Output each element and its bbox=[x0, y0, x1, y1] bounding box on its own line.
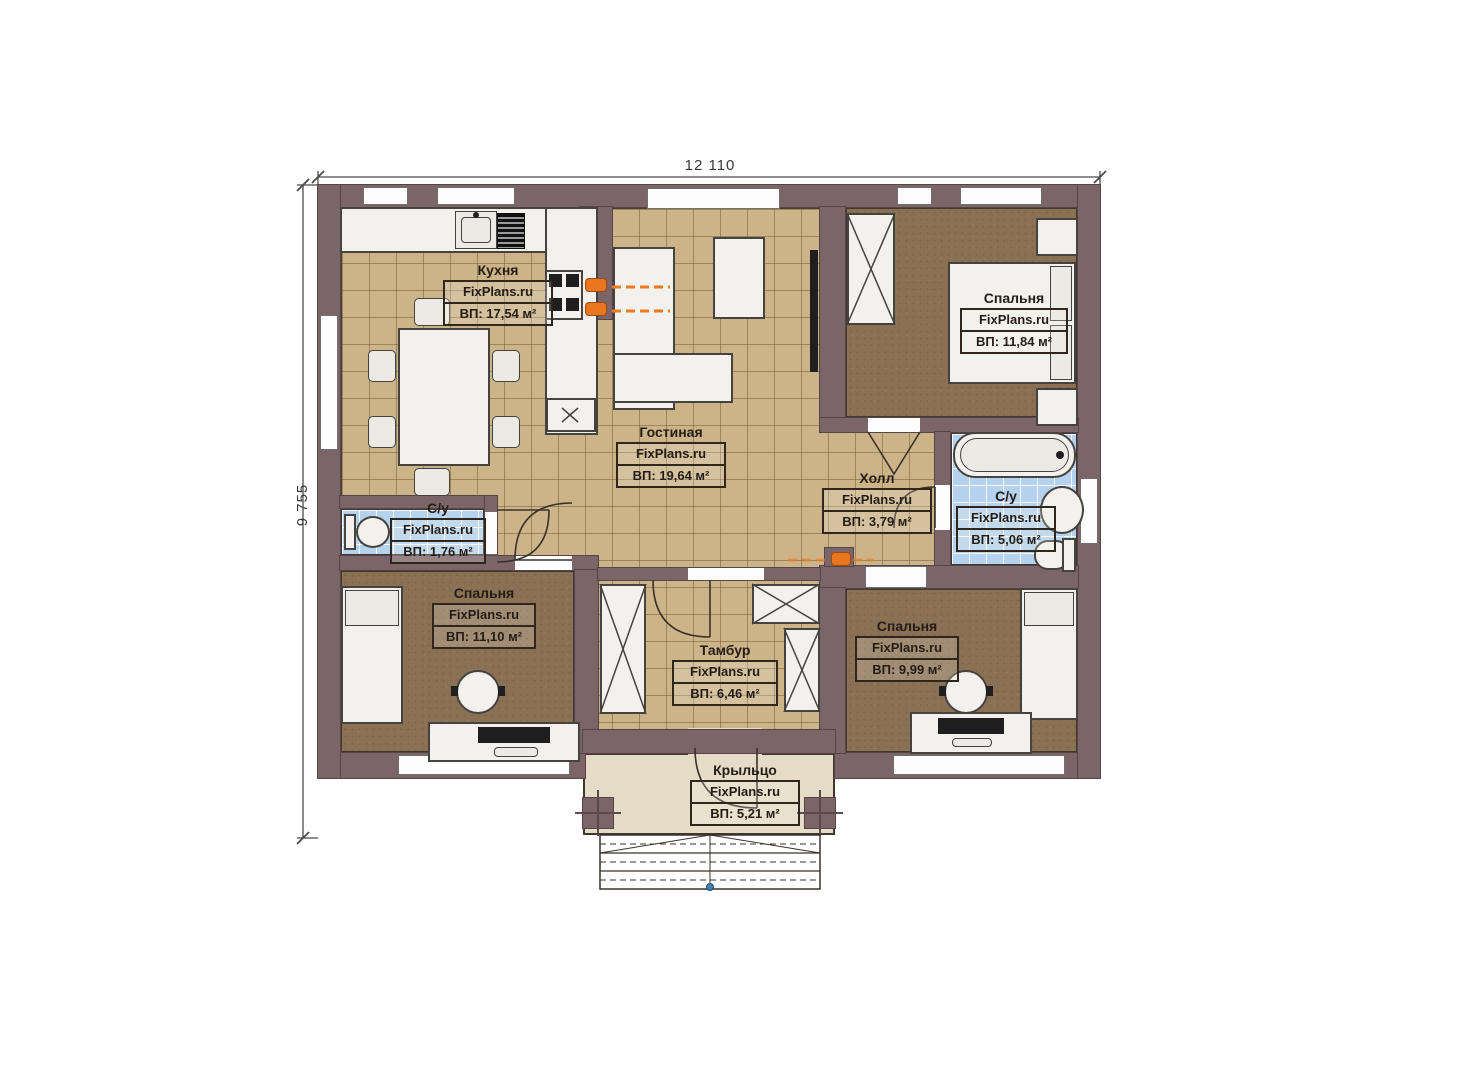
pillow bbox=[345, 590, 399, 626]
wardrobe-vestibule-left bbox=[600, 584, 646, 714]
door-opening-bedroom-tr bbox=[868, 418, 920, 432]
room-name: Холл bbox=[822, 470, 932, 486]
room-info-box: FixPlans.ru ВП: 9,99 м² bbox=[855, 636, 959, 682]
window-kitchen-left bbox=[320, 315, 338, 450]
monitor bbox=[938, 718, 1004, 734]
wardrobe-bedroom-tr bbox=[847, 213, 895, 325]
room-label-bedroom-bl: Спальня FixPlans.ru ВП: 11,10 м² bbox=[432, 585, 536, 649]
window-living bbox=[647, 188, 780, 209]
kitchen-unit bbox=[546, 398, 596, 432]
wardrobe-vestibule-top bbox=[752, 584, 820, 624]
door-opening-bedroom-br bbox=[865, 566, 927, 588]
stove-knob bbox=[585, 278, 607, 292]
door-opening-bedroom-bl bbox=[515, 556, 572, 570]
nightstand bbox=[1036, 388, 1078, 426]
coffee-table bbox=[713, 237, 765, 319]
window-kitchen-1 bbox=[363, 187, 408, 205]
pillow bbox=[1024, 592, 1074, 626]
room-label-kitchen: Кухня FixPlans.ru ВП: 17,54 м² bbox=[443, 262, 553, 326]
room-name: Крыльцо bbox=[690, 762, 800, 778]
wall-outer-left bbox=[318, 185, 340, 778]
porch-stairs bbox=[600, 835, 820, 891]
kitchen-sink-basin bbox=[461, 217, 491, 243]
kitchen-faucet bbox=[473, 212, 479, 218]
room-info-box: FixPlans.ru ВП: 6,46 м² bbox=[672, 660, 778, 706]
room-name: Гостиная bbox=[616, 424, 726, 440]
room-label-bathroom-left: С/у FixPlans.ru ВП: 1,76 м² bbox=[390, 500, 486, 564]
room-info-box: FixPlans.ru ВП: 5,21 м² bbox=[690, 780, 800, 826]
door-opening-bath-right bbox=[935, 485, 950, 530]
room-info-box: FixPlans.ru ВП: 19,64 м² bbox=[616, 442, 726, 488]
tv bbox=[810, 250, 818, 372]
floor-plan-canvas: 12 110 9 755 Кухня FixPlans.ru ВП: 17,54… bbox=[0, 0, 1473, 1080]
toilet-bowl-left bbox=[356, 516, 390, 548]
room-name: Спальня bbox=[432, 585, 536, 601]
brand-watermark: FixPlans.ru bbox=[857, 638, 957, 658]
wall-living-bedroom bbox=[820, 207, 845, 418]
kitchen-appliance bbox=[497, 213, 525, 249]
room-label-living: Гостиная FixPlans.ru ВП: 19,64 м² bbox=[616, 424, 726, 488]
room-area: ВП: 3,79 м² bbox=[824, 510, 930, 532]
chair bbox=[368, 350, 396, 382]
brand-watermark: FixPlans.ru bbox=[824, 490, 930, 510]
wall-vestibule-right bbox=[820, 588, 845, 753]
porch-column-right bbox=[805, 798, 835, 828]
chair bbox=[414, 468, 450, 496]
door-opening-vestibule bbox=[688, 568, 764, 580]
porch-column-left bbox=[583, 798, 613, 828]
monitor bbox=[478, 727, 550, 743]
stove-burner bbox=[566, 274, 579, 287]
room-area: ВП: 6,46 м² bbox=[674, 682, 776, 704]
toilet-tank-left bbox=[344, 514, 356, 550]
brand-watermark: FixPlans.ru bbox=[962, 310, 1066, 330]
wall-vestibule-bottom bbox=[583, 730, 835, 753]
room-name: Спальня bbox=[855, 618, 959, 634]
room-label-vestibule: Тамбур FixPlans.ru ВП: 6,46 м² bbox=[672, 642, 778, 706]
stove-knob bbox=[585, 302, 607, 316]
brand-watermark: FixPlans.ru bbox=[958, 508, 1054, 528]
wardrobe-vestibule-right bbox=[784, 628, 820, 712]
stove-burner bbox=[566, 298, 579, 311]
brand-watermark: FixPlans.ru bbox=[392, 520, 484, 540]
brand-watermark: FixPlans.ru bbox=[674, 662, 776, 682]
pot-handle bbox=[451, 686, 458, 696]
room-label-porch: Крыльцо FixPlans.ru ВП: 5,21 м² bbox=[690, 762, 800, 826]
chair bbox=[492, 416, 520, 448]
pot-handle bbox=[498, 686, 505, 696]
keyboard bbox=[952, 738, 992, 747]
room-label-bedroom-tr: Спальня FixPlans.ru ВП: 11,84 м² bbox=[960, 290, 1068, 354]
chair bbox=[492, 350, 520, 382]
pot-plant bbox=[456, 670, 500, 714]
room-name: С/у bbox=[390, 500, 486, 516]
brand-watermark: FixPlans.ru bbox=[434, 605, 534, 625]
keyboard bbox=[494, 747, 538, 757]
room-area: ВП: 11,84 м² bbox=[962, 330, 1066, 352]
dimension-height-label: 9 755 bbox=[294, 465, 311, 545]
wall-hall-bottom bbox=[820, 566, 1078, 588]
window-bedroom-tr-1 bbox=[897, 187, 932, 205]
sofa-horizontal bbox=[613, 353, 733, 403]
room-area: ВП: 1,76 м² bbox=[392, 540, 484, 562]
room-area: ВП: 19,64 м² bbox=[618, 464, 724, 486]
room-info-box: FixPlans.ru ВП: 11,10 м² bbox=[432, 603, 536, 649]
pot-handle bbox=[986, 686, 993, 696]
room-area: ВП: 5,06 м² bbox=[958, 528, 1054, 550]
brand-watermark: FixPlans.ru bbox=[618, 444, 724, 464]
window-bedroom-br bbox=[893, 755, 1065, 775]
pot-handle bbox=[939, 686, 946, 696]
door-opening-bath-left bbox=[485, 512, 497, 554]
room-area: ВП: 11,10 м² bbox=[434, 625, 534, 647]
brand-watermark: FixPlans.ru bbox=[445, 282, 551, 302]
chair bbox=[368, 416, 396, 448]
room-area: ВП: 5,21 м² bbox=[692, 802, 798, 824]
bathtub-basin bbox=[960, 438, 1069, 472]
boiler-unit bbox=[831, 552, 851, 566]
room-info-box: FixPlans.ru ВП: 17,54 м² bbox=[443, 280, 553, 326]
dining-table bbox=[398, 328, 490, 466]
room-label-bathroom-right: С/у FixPlans.ru ВП: 5,06 м² bbox=[956, 488, 1056, 552]
room-label-bedroom-br: Спальня FixPlans.ru ВП: 9,99 м² bbox=[855, 618, 959, 682]
room-info-box: FixPlans.ru ВП: 1,76 м² bbox=[390, 518, 486, 564]
window-bedroom-tr-2 bbox=[960, 187, 1042, 205]
room-area: ВП: 9,99 м² bbox=[857, 658, 957, 680]
room-label-hall: Холл FixPlans.ru ВП: 3,79 м² bbox=[822, 470, 932, 534]
window-kitchen-2 bbox=[437, 187, 515, 205]
room-info-box: FixPlans.ru ВП: 3,79 м² bbox=[822, 488, 932, 534]
bathtub-faucet bbox=[1056, 451, 1064, 459]
room-info-box: FixPlans.ru ВП: 11,84 м² bbox=[960, 308, 1068, 354]
brand-watermark: FixPlans.ru bbox=[692, 782, 798, 802]
toilet-tank bbox=[1062, 538, 1076, 572]
room-name: Тамбур bbox=[672, 642, 778, 658]
room-name: Кухня bbox=[443, 262, 553, 278]
room-name: С/у bbox=[956, 488, 1056, 504]
room-info-box: FixPlans.ru ВП: 5,06 м² bbox=[956, 506, 1056, 552]
dimension-width-label: 12 110 bbox=[650, 157, 770, 174]
nightstand bbox=[1036, 218, 1078, 256]
room-area: ВП: 17,54 м² bbox=[445, 302, 551, 324]
room-name: Спальня bbox=[960, 290, 1068, 306]
